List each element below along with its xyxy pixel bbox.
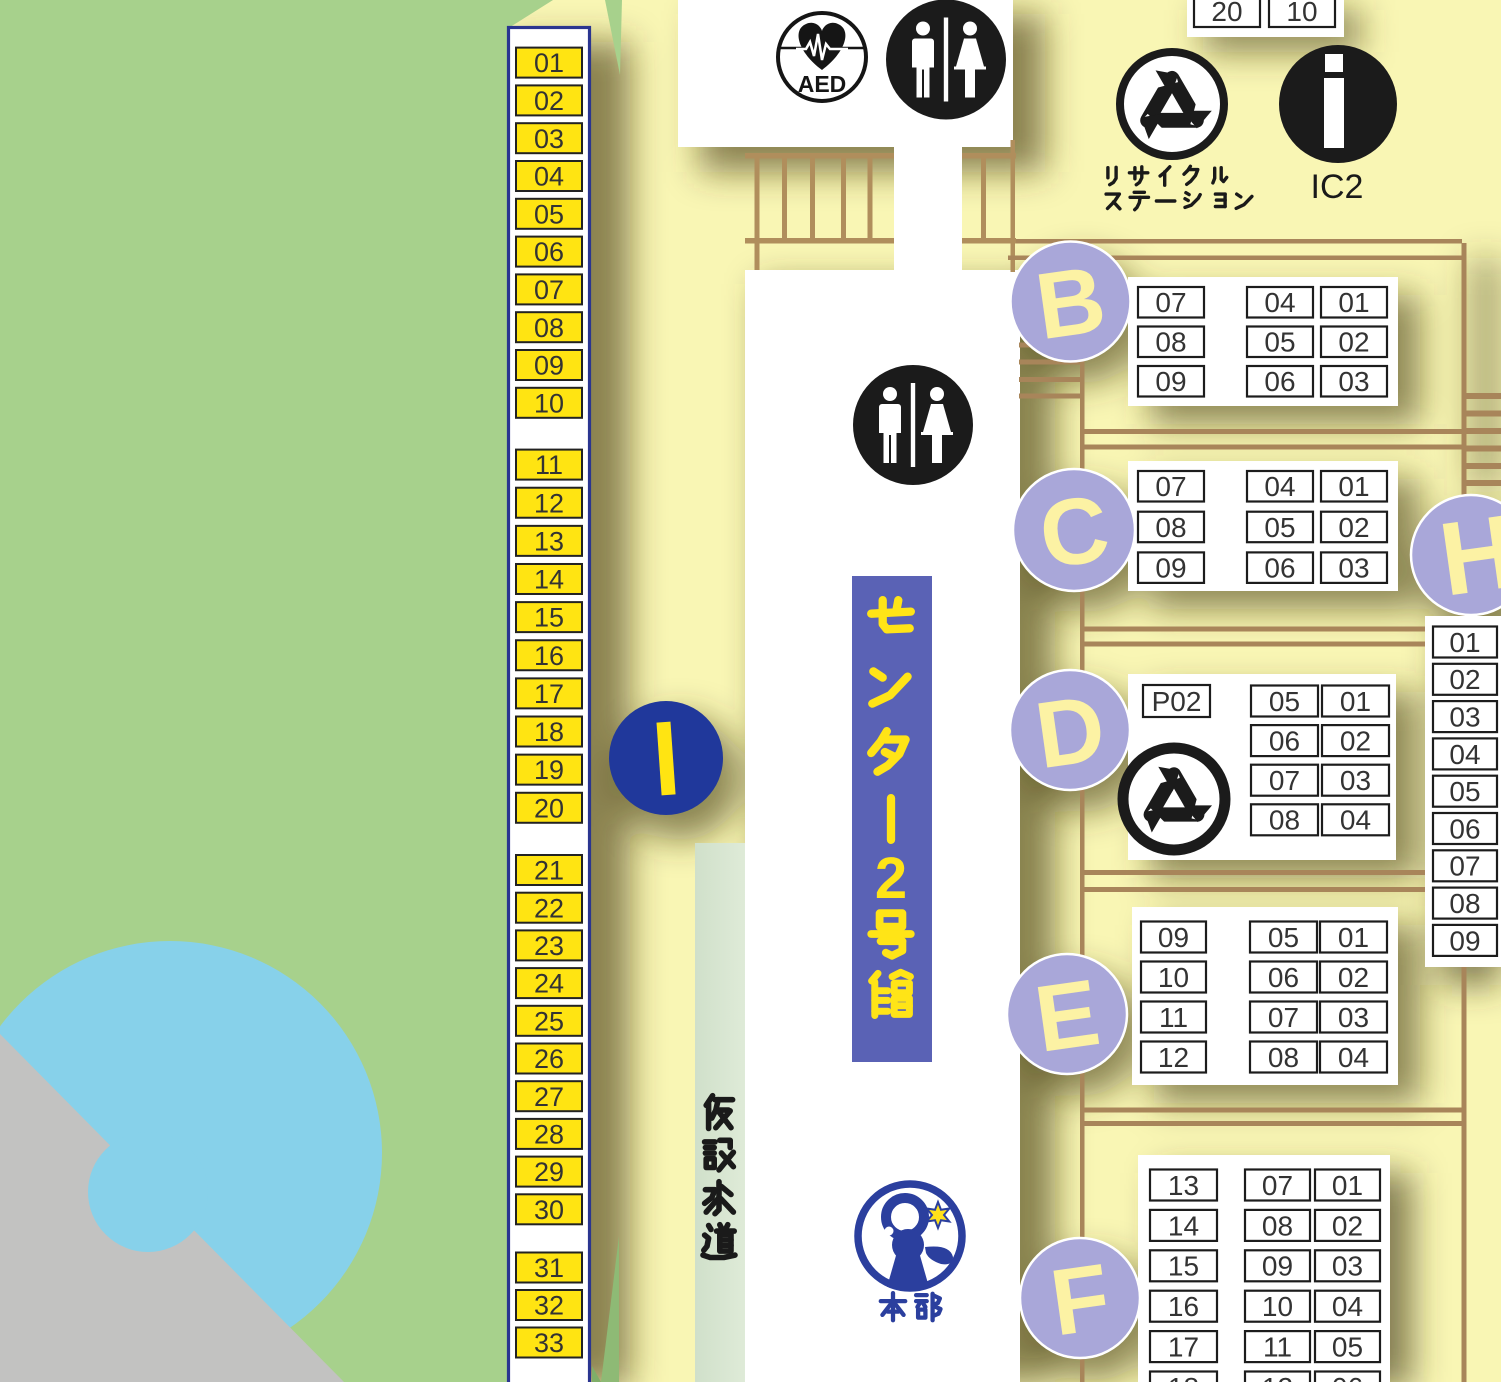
svg-text:07: 07 (534, 275, 564, 305)
svg-text:08: 08 (1262, 1210, 1293, 1241)
svg-text:03: 03 (1332, 1251, 1363, 1282)
svg-text:07: 07 (1262, 1170, 1293, 1201)
svg-text:02: 02 (1449, 664, 1480, 695)
svg-text:10: 10 (1262, 1291, 1293, 1322)
svg-text:30: 30 (534, 1195, 564, 1225)
svg-text:03: 03 (1338, 366, 1369, 397)
svg-text:17: 17 (1168, 1332, 1199, 1363)
svg-text:16: 16 (1168, 1291, 1199, 1322)
svg-text:27: 27 (534, 1082, 564, 1112)
svg-text:02: 02 (534, 86, 564, 116)
svg-text:06: 06 (1332, 1372, 1363, 1382)
svg-text:04: 04 (1340, 805, 1371, 836)
svg-text:03: 03 (534, 124, 564, 154)
svg-text:20: 20 (1211, 0, 1242, 27)
svg-text:10: 10 (534, 388, 564, 418)
svg-text:08: 08 (1155, 512, 1186, 543)
svg-text:11: 11 (1263, 1332, 1292, 1363)
svg-text:28: 28 (534, 1120, 564, 1150)
svg-text:09: 09 (1158, 922, 1189, 953)
svg-text:32: 32 (534, 1291, 564, 1321)
svg-text:06: 06 (1449, 813, 1480, 844)
svg-text:02: 02 (1338, 512, 1369, 543)
svg-text:13: 13 (1168, 1170, 1199, 1201)
svg-text:25: 25 (534, 1006, 564, 1036)
svg-text:05: 05 (1264, 327, 1295, 358)
svg-text:01: 01 (1340, 686, 1371, 717)
svg-text:11: 11 (535, 450, 563, 480)
svg-text:05: 05 (1332, 1332, 1363, 1363)
svg-text:09: 09 (534, 351, 564, 381)
svg-text:08: 08 (1155, 327, 1186, 358)
svg-text:04: 04 (534, 162, 564, 192)
svg-text:11: 11 (1159, 1002, 1188, 1033)
svg-text:10: 10 (1158, 962, 1189, 993)
svg-text:C: C (1033, 475, 1115, 588)
svg-text:09: 09 (1449, 925, 1480, 956)
svg-text:04: 04 (1332, 1291, 1363, 1322)
svg-text:03: 03 (1338, 1002, 1369, 1033)
svg-text:07: 07 (1155, 287, 1186, 318)
svg-text:12: 12 (1262, 1372, 1293, 1382)
svg-text:06: 06 (1268, 962, 1299, 993)
svg-text:02: 02 (1340, 726, 1371, 757)
svg-text:17: 17 (534, 679, 564, 709)
svg-text:06: 06 (1264, 553, 1295, 584)
svg-text:01: 01 (1338, 471, 1369, 502)
svg-text:06: 06 (1269, 726, 1300, 757)
svg-text:22: 22 (534, 893, 564, 923)
svg-text:12: 12 (1158, 1042, 1189, 1073)
svg-text:06: 06 (1264, 366, 1295, 397)
svg-text:15: 15 (534, 603, 564, 633)
svg-text:07: 07 (1269, 765, 1300, 796)
svg-text:05: 05 (1268, 922, 1299, 953)
svg-text:05: 05 (1264, 512, 1295, 543)
svg-text:20: 20 (534, 793, 564, 823)
svg-text:03: 03 (1340, 765, 1371, 796)
svg-text:13: 13 (534, 526, 564, 556)
svg-text:01: 01 (1332, 1170, 1363, 1201)
svg-text:26: 26 (534, 1044, 564, 1074)
svg-text:18: 18 (534, 717, 564, 747)
svg-text:01: 01 (534, 48, 564, 78)
svg-text:03: 03 (1449, 702, 1480, 733)
svg-text:31: 31 (534, 1253, 564, 1283)
svg-text:01: 01 (1338, 922, 1369, 953)
svg-text:06: 06 (534, 237, 564, 267)
svg-text:02: 02 (1332, 1210, 1363, 1241)
svg-text:16: 16 (534, 641, 564, 671)
svg-text:AED: AED (798, 71, 847, 97)
svg-text:01: 01 (1338, 287, 1369, 318)
svg-text:07: 07 (1268, 1002, 1299, 1033)
svg-text:P02: P02 (1152, 686, 1202, 717)
svg-text:23: 23 (534, 931, 564, 961)
svg-text:08: 08 (1268, 1042, 1299, 1073)
svg-text:14: 14 (1168, 1210, 1199, 1241)
svg-text:29: 29 (534, 1157, 564, 1187)
svg-text:08: 08 (534, 313, 564, 343)
svg-text:33: 33 (534, 1328, 564, 1358)
svg-text:02: 02 (1338, 962, 1369, 993)
svg-text:04: 04 (1449, 739, 1480, 770)
svg-text:05: 05 (1449, 776, 1480, 807)
svg-text:18: 18 (1168, 1372, 1199, 1382)
svg-text:04: 04 (1338, 1042, 1369, 1073)
svg-text:D: D (1029, 675, 1111, 788)
svg-text:07: 07 (1155, 471, 1186, 502)
svg-text:B: B (1030, 246, 1112, 359)
svg-text:IC2: IC2 (1311, 168, 1364, 206)
svg-text:10: 10 (1286, 0, 1317, 27)
svg-text:2: 2 (875, 846, 907, 911)
svg-text:09: 09 (1155, 553, 1186, 584)
svg-text:08: 08 (1449, 888, 1480, 919)
svg-text:03: 03 (1338, 553, 1369, 584)
svg-text:01: 01 (1449, 627, 1480, 658)
svg-text:19: 19 (534, 755, 564, 785)
svg-text:05: 05 (534, 199, 564, 229)
svg-text:07: 07 (1449, 851, 1480, 882)
svg-text:04: 04 (1264, 287, 1295, 318)
svg-text:21: 21 (534, 856, 564, 886)
svg-text:09: 09 (1155, 366, 1186, 397)
svg-text:15: 15 (1168, 1251, 1199, 1282)
svg-text:02: 02 (1338, 327, 1369, 358)
svg-text:08: 08 (1269, 805, 1300, 836)
svg-text:14: 14 (534, 565, 564, 595)
svg-text:12: 12 (534, 488, 564, 518)
svg-text:05: 05 (1269, 686, 1300, 717)
svg-text:09: 09 (1262, 1251, 1293, 1282)
svg-text:04: 04 (1264, 471, 1295, 502)
svg-text:24: 24 (534, 969, 564, 999)
